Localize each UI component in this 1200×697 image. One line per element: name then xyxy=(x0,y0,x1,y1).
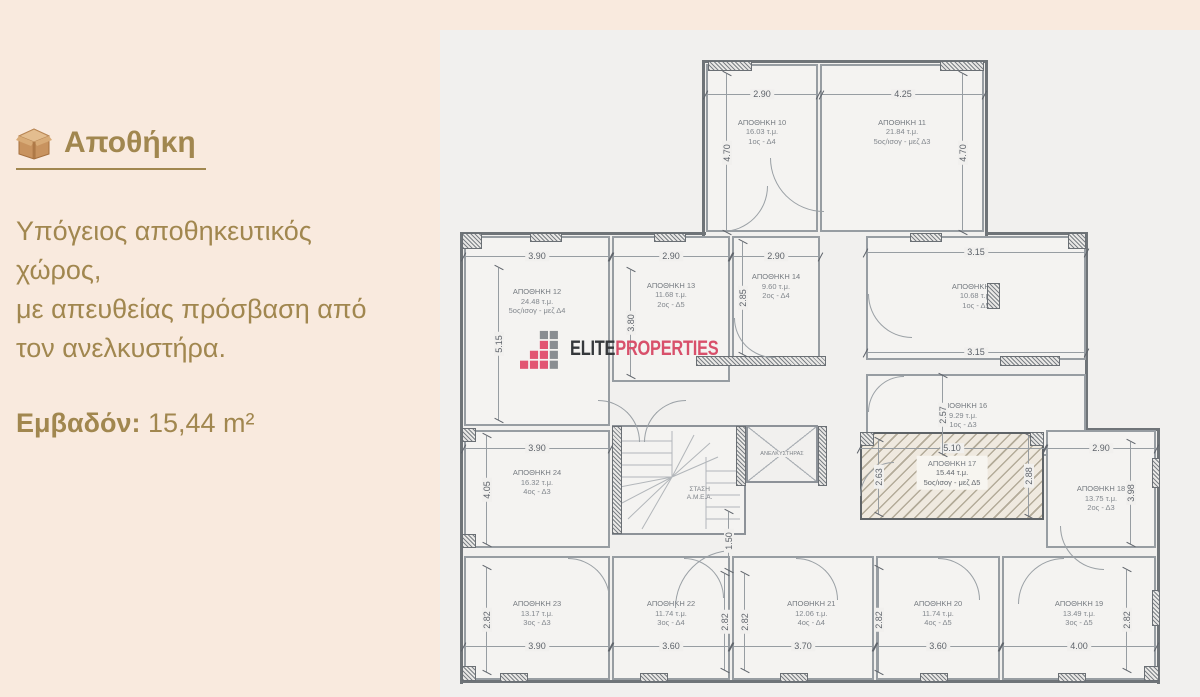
room-floor: 3ος - Δ3 xyxy=(513,618,561,628)
dim-bottom-height-4: 2.82 xyxy=(878,568,879,672)
wall-hatch xyxy=(1144,666,1159,681)
room-floor: 2ος - Δ5 xyxy=(647,300,695,310)
listing-description: Υπόγειος αποθηκευτικός χώρος, με απευθεί… xyxy=(16,212,441,368)
page-title: Αποθήκη xyxy=(64,126,196,160)
room-name: ΑΠΟΘΗΚΗ 21 xyxy=(787,599,835,609)
area-label: Εμβαδόν: xyxy=(16,408,140,438)
dim-room13-width: 2.90 xyxy=(612,256,730,257)
room-name: ΑΠΟΘΗΚΗ 12 xyxy=(509,287,566,297)
room-name: ΑΠΟΘΗΚΗ 17 xyxy=(924,458,981,468)
dim-room18-height: 3.98 xyxy=(1130,442,1131,544)
door-arc xyxy=(644,400,686,442)
room-area: 24.48 τ.μ. xyxy=(509,296,566,306)
dim-room18-width: 2.90 xyxy=(1046,448,1156,449)
wall-hatch xyxy=(910,233,942,242)
wall-hatch xyxy=(530,233,562,242)
wall xyxy=(460,680,1160,683)
room-area: 15.44 τ.μ. xyxy=(924,468,981,478)
room-floor: 5ος/ισογ - μεζ Δ3 xyxy=(874,136,931,146)
room-area: 12.06 τ.μ. xyxy=(787,608,835,618)
wall xyxy=(460,232,463,684)
room-name: ΑΠΟΘΗΚΗ 13 xyxy=(647,281,695,291)
wall-hatch xyxy=(462,428,476,442)
wall-hatch xyxy=(708,61,752,71)
wall-hatch xyxy=(654,233,686,242)
dim-room20-width: 3.60 xyxy=(876,646,1000,647)
package-icon xyxy=(16,126,52,160)
dim-room17-height-right: 2.88 xyxy=(1028,436,1029,516)
wall-hatch xyxy=(1152,458,1160,488)
dim-room12-width: 3.90 xyxy=(464,256,610,257)
brand-logo-icon xyxy=(520,328,562,370)
room-floor: 1ος - Δ4 xyxy=(738,136,786,146)
floor-plan: ΑΠΟΘΗΚΗ 1016.03 τ.μ.1ος - Δ4 ΑΠΟΘΗΚΗ 112… xyxy=(440,30,1200,697)
listing-info-panel: Αποθήκη Υπόγειος αποθηκευτικός χώρος, με… xyxy=(16,126,441,439)
room-name: ΑΠΟΘΗΚΗ 20 xyxy=(914,599,962,609)
dim-bottom-height-3: 2.82 xyxy=(744,574,745,670)
wall-hatch xyxy=(920,673,948,682)
stairs-steps xyxy=(614,427,744,533)
dim-room17-width: 5.10 xyxy=(860,448,1044,449)
room-name: ΑΠΟΘΗΚΗ 11 xyxy=(874,117,931,127)
stairs-label: ΣΤΑΣΗ Α.Μ.Ε.Α. xyxy=(687,486,713,502)
room-name: ΑΠΟΘΗΚΗ 24 xyxy=(513,468,561,478)
wall-hatch xyxy=(500,673,528,682)
room-area: 13.75 τ.μ. xyxy=(1077,493,1125,503)
wall-hatch xyxy=(462,666,476,681)
dim-room15-width: 3.15 xyxy=(866,252,1086,253)
wall-hatch xyxy=(640,673,668,682)
room-area: 11.74 τ.μ. xyxy=(647,608,695,618)
wall-hatch xyxy=(940,61,984,71)
dim-room21-width: 3.70 xyxy=(732,646,874,647)
section-title-row: Αποθήκη xyxy=(16,126,206,170)
wall-hatch xyxy=(1068,233,1086,249)
wall xyxy=(985,60,988,238)
dim-room24-height: 4.05 xyxy=(486,436,487,544)
dim-room11-width: 4.25 xyxy=(822,94,984,95)
dim-room22-width: 3.60 xyxy=(612,646,730,647)
description-line: με απευθείας πρόσβαση από xyxy=(16,290,441,329)
wall-hatch xyxy=(1030,432,1044,446)
wall-hatch xyxy=(736,426,746,486)
dim-room12-height: 5.15 xyxy=(498,268,499,420)
area-line: Εμβαδόν: 15,44 m² xyxy=(16,408,441,439)
room-floor: 4ος - Δ3 xyxy=(513,487,561,497)
elevator-label: ΑΝΕΛΚΥΣΤΗΡΑΣ xyxy=(758,451,805,457)
room-19: ΑΠΟΘΗΚΗ 1913.49 τ.μ.3ος - Δ5 xyxy=(1002,556,1156,680)
room-floor: 3ος - Δ4 xyxy=(647,618,695,628)
room-area: 16.32 τ.μ. xyxy=(513,477,561,487)
dim-bottom-height-5: 2.82 xyxy=(1126,570,1127,670)
room-area: 21.84 τ.μ. xyxy=(874,127,931,137)
stairs-label-line: ΣΤΑΣΗ xyxy=(687,486,713,494)
wall-hatch xyxy=(612,426,622,534)
room-floor: 5ος/ισογ - μεζ Δ5 xyxy=(924,477,981,487)
wall-hatch xyxy=(462,233,482,249)
description-line: Υπόγειος αποθηκευτικός xyxy=(16,212,441,251)
dim-room14-width: 2.90 xyxy=(732,256,820,257)
stairs-label-line: Α.Μ.Ε.Α. xyxy=(687,494,713,502)
dim-room10-width: 2.90 xyxy=(706,94,818,95)
brand-name: ELITEPROPERTIES xyxy=(570,337,719,361)
dim-bottom-height-2: 2.82 xyxy=(724,574,725,670)
dim-room16-width: 3.15 xyxy=(866,352,1086,353)
brand-name-secondary: PROPERTIES xyxy=(615,337,718,360)
wall-hatch xyxy=(818,426,827,486)
room-area: 16.03 τ.μ. xyxy=(738,127,786,137)
room-area: 11.68 τ.μ. xyxy=(647,290,695,300)
dim-topblock-height-left: 4.70 xyxy=(726,74,727,232)
room-name: ΑΠΟΘΗΚΗ 14 xyxy=(752,272,800,282)
wall-hatch xyxy=(1152,590,1160,626)
dim-room16-height: 2.57 xyxy=(942,376,943,454)
room-floor: 5ος/ισογ - μεζ Δ4 xyxy=(509,306,566,316)
description-line: τον ανελκυστήρα. xyxy=(16,329,441,368)
door-arc xyxy=(598,400,640,442)
room-area: 9.60 τ.μ. xyxy=(752,281,800,291)
description-line: χώρος, xyxy=(16,251,441,290)
dim-room17-height-left: 2.63 xyxy=(878,440,879,514)
room-area: 13.17 τ.μ. xyxy=(513,608,561,618)
room-area: 11.74 τ.μ. xyxy=(914,608,962,618)
room-floor: 4ος - Δ5 xyxy=(914,618,962,628)
room-floor: 4ος - Δ4 xyxy=(787,618,835,628)
room-area: 13.49 τ.μ. xyxy=(1055,608,1103,618)
brand-watermark: ELITEPROPERTIES xyxy=(520,328,760,370)
wall-hatch xyxy=(1000,356,1060,366)
brand-name-primary: ELITE xyxy=(570,337,615,360)
wall xyxy=(702,60,705,238)
room-floor: 2ος - Δ4 xyxy=(752,291,800,301)
room-name: ΑΠΟΘΗΚΗ 23 xyxy=(513,599,561,609)
wall-hatch xyxy=(780,673,808,682)
wall-hatch xyxy=(1058,673,1086,682)
dim-bottom-height-1: 2.82 xyxy=(486,568,487,672)
dim-stair-landing: 1.50 xyxy=(728,512,729,570)
room-name: ΑΠΟΘΗΚΗ 10 xyxy=(738,117,786,127)
dim-topblock-height-right: 4.70 xyxy=(962,74,963,232)
dim-room19-width: 4.00 xyxy=(1002,646,1156,647)
room-floor: 3ος - Δ5 xyxy=(1055,618,1103,628)
room-floor: 2ος - Δ3 xyxy=(1077,503,1125,513)
elevator: ΑΝΕΛΚΥΣΤΗΡΑΣ xyxy=(746,425,818,483)
wall-hatch xyxy=(987,283,1000,309)
wall-hatch xyxy=(462,534,476,548)
area-value: 15,44 m² xyxy=(140,408,254,438)
room-name: ΑΠΟΘΗΚΗ 18 xyxy=(1077,484,1125,494)
